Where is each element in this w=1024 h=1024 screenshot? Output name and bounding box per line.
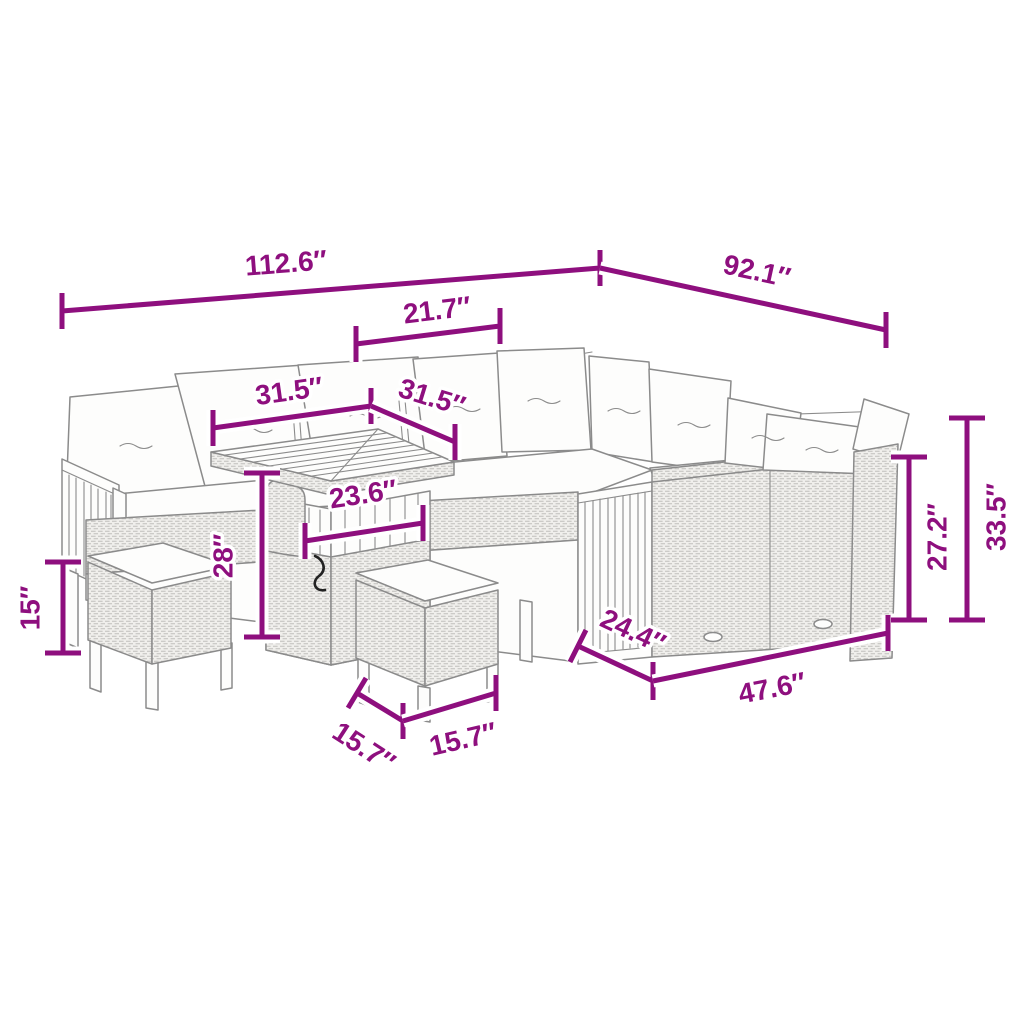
back-cushion-corner	[497, 348, 591, 452]
dim-label-back-height: 27.2″	[922, 503, 953, 571]
dim-label-corner-width: 21.7″	[401, 290, 472, 329]
corner-sofa-set-drawing	[62, 348, 909, 722]
dimension-diagram: 112.6″ 92.1″ 21.7″ 31.5″ 31.5″ 23.6″ 28″…	[0, 0, 1024, 1024]
furniture-dimension-drawing: 112.6″ 92.1″ 21.7″ 31.5″ 31.5″ 23.6″ 28″…	[0, 0, 1024, 1024]
dim-label-sofa-front-width: 47.6″	[736, 666, 809, 709]
dim-label-stool-width: 15.7″	[426, 716, 499, 761]
dim-label-total-height: 33.5″	[981, 483, 1012, 551]
dim-label-overall-left: 112.6″	[244, 244, 328, 281]
dim-label-stool-depth: 15.7″	[327, 716, 401, 779]
dim-label-overall-right: 92.1″	[721, 249, 794, 294]
foot	[814, 620, 832, 629]
back-cushion	[649, 369, 731, 472]
sofa-leg	[520, 600, 532, 662]
stool-leg	[146, 662, 158, 710]
dim-label-stool-height: 15″	[15, 586, 46, 631]
dim-overall-left	[62, 250, 600, 329]
back-cushion	[589, 356, 654, 462]
foot	[704, 633, 722, 642]
stool-leg	[90, 640, 101, 692]
dim-label-table-height: 28″	[208, 534, 239, 579]
